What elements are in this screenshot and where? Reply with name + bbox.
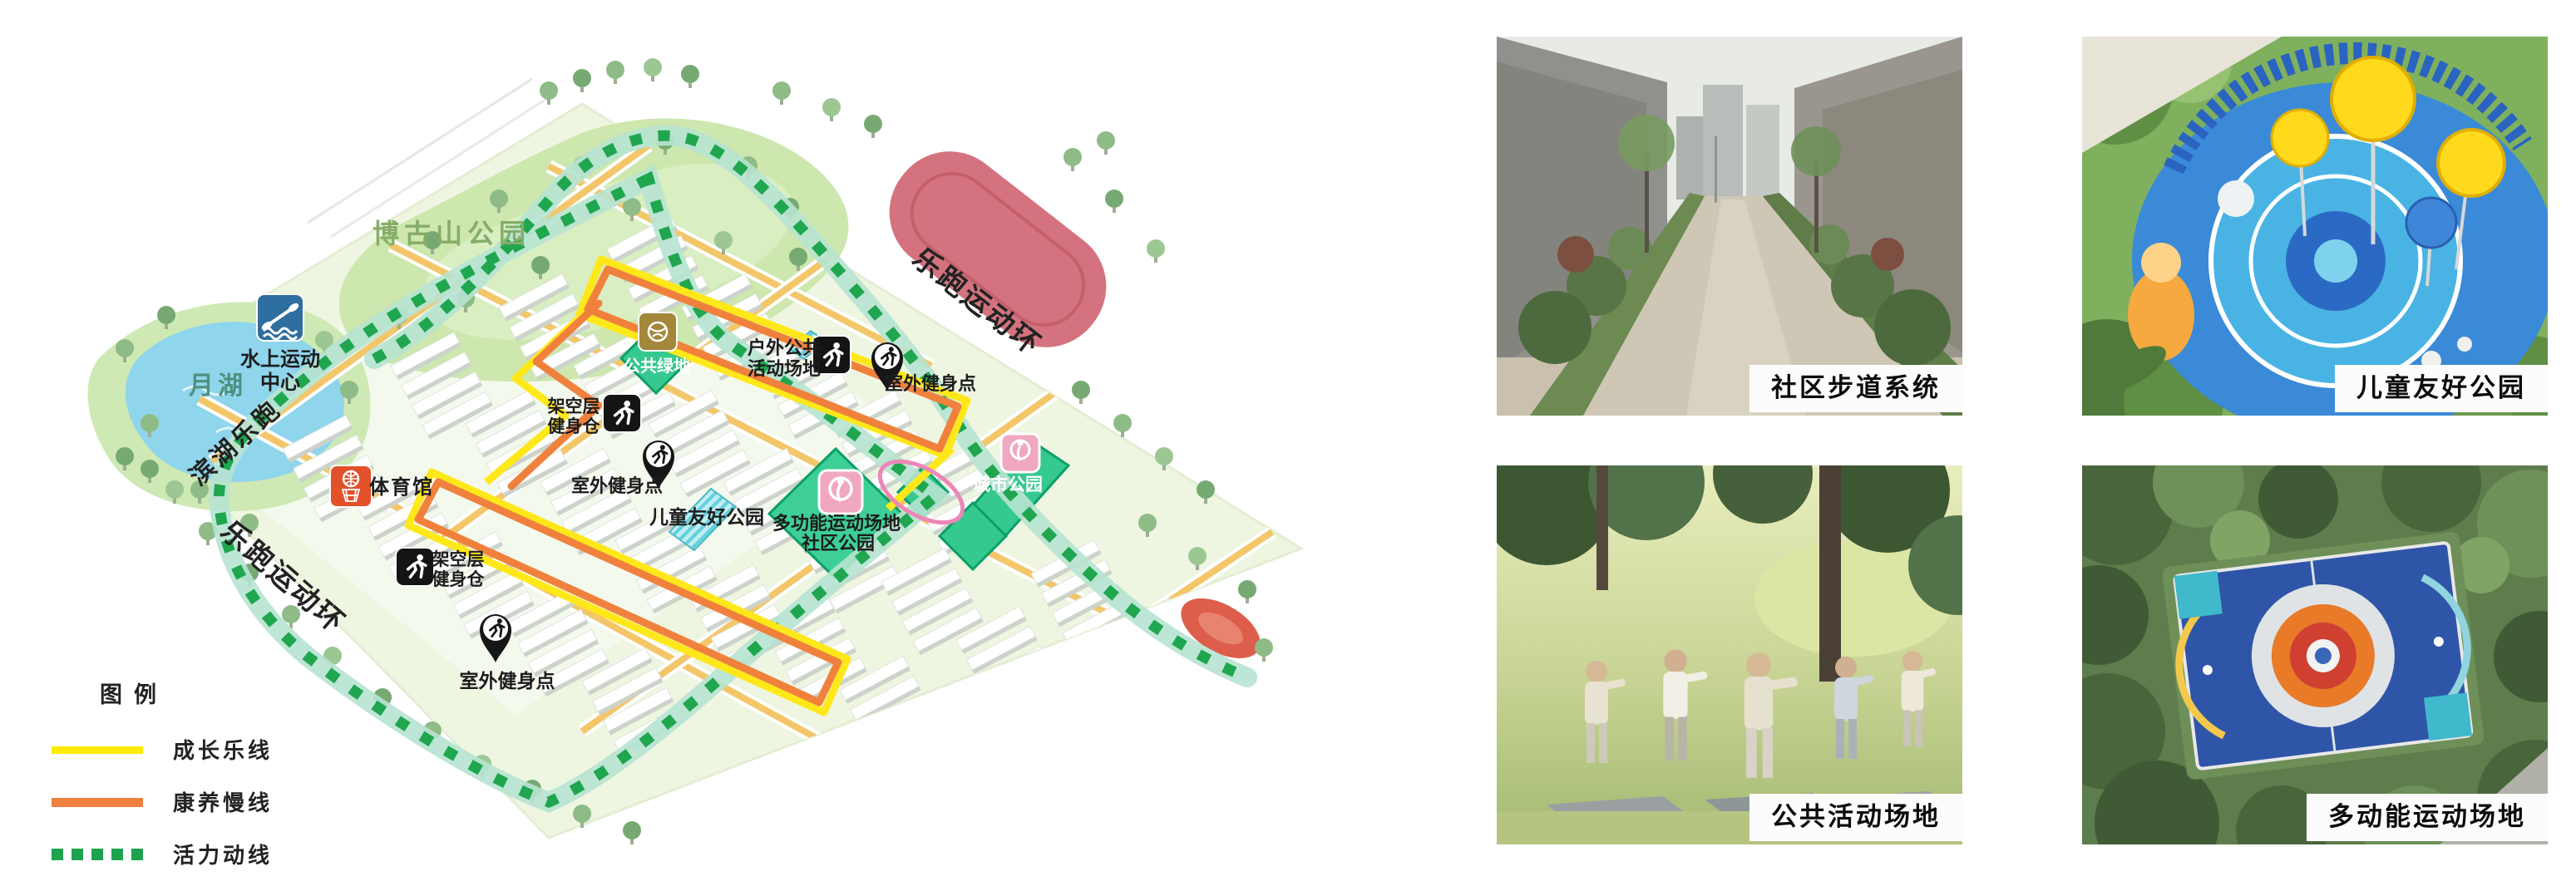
public-green-icon	[639, 313, 677, 351]
photo-caption: 社区步道系统	[1749, 365, 1962, 412]
label-fitness-point-mid: 室外健身点	[571, 475, 663, 496]
label-public-green: 公共绿地	[624, 356, 690, 376]
community-sports-icon	[819, 470, 862, 514]
legend-item-vitality: 活力动线	[52, 839, 273, 869]
photo-caption: 儿童友好公园	[2335, 365, 2548, 412]
label-stilt-gym-2a: 架空层	[432, 549, 485, 569]
stilt-gym-icon	[396, 548, 434, 586]
label-moon-lake: 月湖	[189, 372, 247, 400]
photo-public-activity: 公共活动场地	[1497, 465, 1962, 844]
label-gymnasium: 体育馆	[369, 475, 434, 499]
wellness-line-swatch	[52, 795, 143, 810]
label-water-sports-2: 中心	[260, 372, 300, 394]
label-community-2: 社区公园	[802, 533, 875, 554]
legend-title: 图例	[100, 677, 273, 709]
label-children-park: 儿童友好公园	[649, 506, 764, 528]
photo-community-walkway: 社区步道系统	[1497, 37, 1962, 416]
children-park-photo-art	[2082, 37, 2548, 416]
label-fitness-point-sw: 室外健身点	[460, 670, 555, 692]
growth-line-swatch	[52, 742, 143, 757]
label-outdoor-public-1: 户外公共	[748, 337, 821, 358]
legend-label-wellness: 康养慢线	[173, 786, 273, 817]
label-fitness-point-ne: 室外健身点	[885, 373, 976, 394]
label-stilt-gym-1a: 架空层	[548, 396, 600, 416]
legend-label-vitality: 活力动线	[173, 839, 273, 869]
label-stilt-gym-1b: 健身仓	[548, 416, 601, 436]
label-outdoor-public-2: 活动场地	[748, 358, 821, 379]
legend: 图例 成长乐线 康养慢线 活力动线	[52, 677, 273, 891]
label-stilt-gym-2b: 健身仓	[432, 569, 486, 589]
label-bogu-park: 博古山公园	[373, 219, 530, 249]
legend-label-growth: 成长乐线	[173, 734, 273, 765]
multi-sports-photo-art	[2082, 465, 2548, 844]
vitality-line-swatch	[52, 847, 143, 862]
legend-item-growth: 成长乐线	[52, 734, 273, 765]
public-activity-photo-art	[1497, 465, 1962, 844]
photo-caption: 公共活动场地	[1749, 794, 1962, 841]
label-water-sports-1: 水上运动	[240, 348, 320, 371]
community-walkway-photo-art	[1497, 37, 1962, 416]
city-park-icon	[1001, 434, 1039, 472]
photo-multi-sports: 多动能运动场地	[2082, 465, 2548, 844]
label-city-park: 城市公园	[973, 475, 1043, 495]
water-sports-icon	[257, 294, 303, 341]
photo-caption: 多动能运动场地	[2307, 794, 2548, 841]
stilt-gym-icon	[603, 394, 641, 432]
page: 博古山公园 水上运动 中心 月湖 滨湖乐跑 乐跑运动环 乐跑运动环 公共绿地 户…	[0, 0, 2576, 891]
gymnasium-icon	[330, 465, 372, 507]
photo-children-park: 儿童友好公园	[2082, 37, 2548, 416]
legend-item-wellness: 康养慢线	[52, 786, 273, 817]
label-community-1: 多功能运动场地	[772, 513, 901, 534]
